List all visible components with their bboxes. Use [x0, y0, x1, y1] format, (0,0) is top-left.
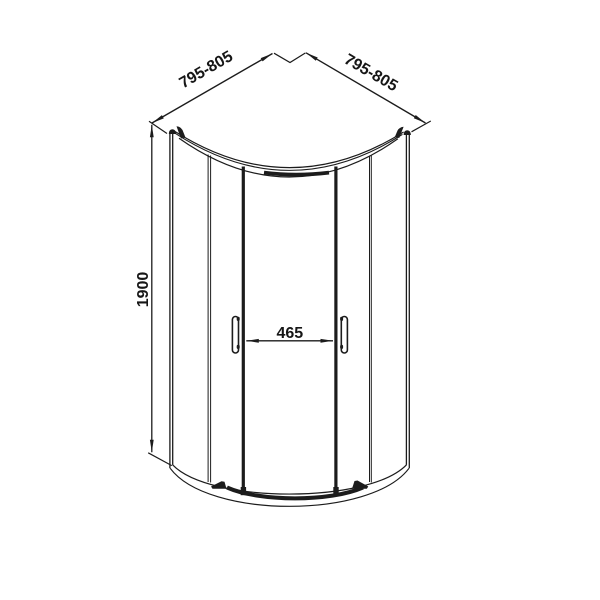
svg-text:465: 465: [276, 325, 303, 342]
svg-text:795-805: 795-805: [177, 48, 236, 92]
svg-text:1900: 1900: [135, 272, 152, 308]
svg-text:795-805: 795-805: [341, 51, 400, 95]
